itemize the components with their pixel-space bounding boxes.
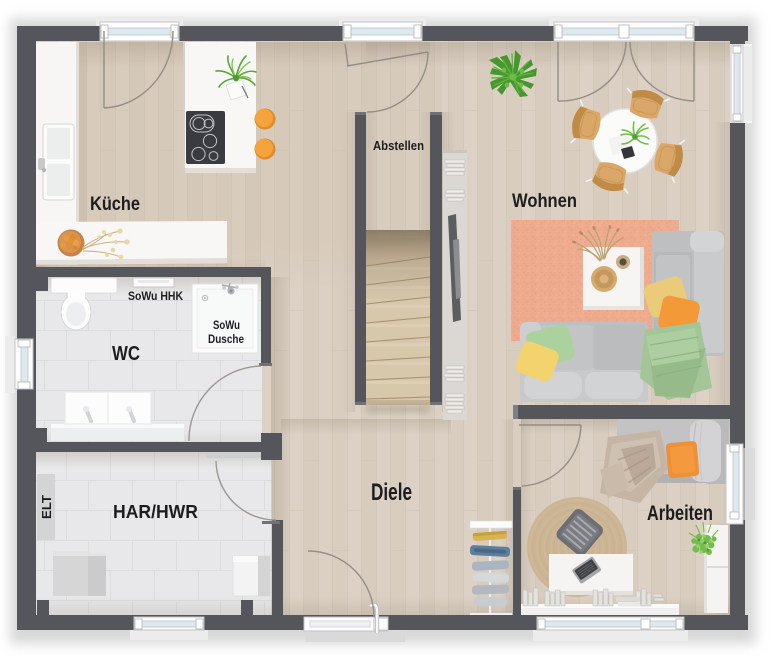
svg-text:HAR/HWR: HAR/HWR — [113, 502, 198, 522]
svg-text:Küche: Küche — [90, 194, 140, 215]
svg-text:Arbeiten: Arbeiten — [647, 501, 713, 525]
svg-text:Diele: Diele — [371, 479, 412, 506]
svg-text:Abstellen: Abstellen — [373, 138, 424, 153]
svg-text:SoWu: SoWu — [213, 318, 240, 332]
svg-text:WC: WC — [112, 343, 140, 365]
svg-text:Dusche: Dusche — [208, 332, 244, 346]
svg-text:SoWu HHK: SoWu HHK — [128, 289, 183, 303]
svg-text:Wohnen: Wohnen — [512, 191, 577, 212]
svg-text:ELT: ELT — [39, 495, 54, 519]
